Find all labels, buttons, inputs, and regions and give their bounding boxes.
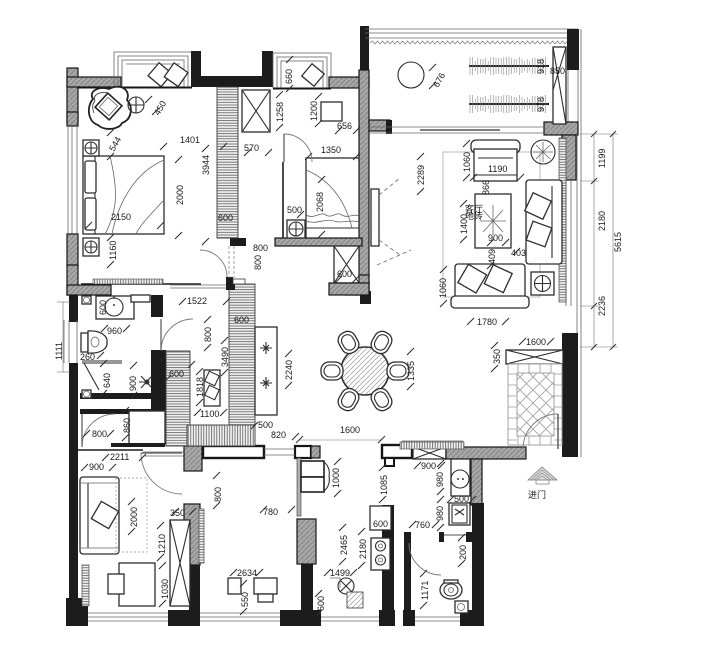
svg-text:1171: 1171 [420, 581, 430, 600]
svg-text:820: 820 [271, 430, 286, 440]
svg-text:350: 350 [492, 349, 502, 364]
svg-text:1000: 1000 [331, 468, 341, 488]
svg-text:1085: 1085 [379, 475, 389, 495]
svg-text:地砖: 地砖 [465, 210, 483, 221]
svg-text:200: 200 [458, 545, 468, 560]
svg-text:1522: 1522 [187, 296, 207, 306]
svg-text:5615: 5615 [613, 232, 623, 252]
svg-text:980: 980 [435, 472, 445, 487]
svg-text:500: 500 [454, 494, 469, 504]
svg-text:2211: 2211 [110, 452, 129, 462]
svg-text:600: 600 [98, 300, 108, 315]
svg-text:409: 409 [487, 249, 497, 264]
svg-text:500: 500 [258, 420, 273, 430]
svg-text:640: 640 [102, 373, 112, 388]
svg-text:600: 600 [169, 369, 184, 379]
svg-text:1030: 1030 [160, 579, 170, 599]
svg-text:800: 800 [253, 255, 263, 270]
svg-text:900: 900 [421, 461, 436, 471]
svg-text:1499: 1499 [330, 568, 350, 578]
svg-text:800: 800 [253, 243, 268, 253]
svg-text:1818: 1818 [195, 377, 205, 397]
svg-text:1111: 1111 [54, 342, 64, 360]
svg-text:800: 800 [92, 429, 107, 439]
svg-text:1210: 1210 [157, 534, 167, 554]
svg-text:3944: 3944 [201, 155, 211, 175]
svg-text:2634: 2634 [237, 568, 257, 578]
svg-text:500: 500 [287, 205, 302, 215]
svg-text:600: 600 [316, 596, 326, 611]
svg-text:350: 350 [170, 508, 185, 518]
svg-text:600: 600 [373, 519, 388, 529]
svg-text:2465: 2465 [339, 535, 349, 555]
svg-text:960: 960 [107, 326, 122, 336]
svg-text:260: 260 [80, 352, 95, 362]
svg-text:2240: 2240 [284, 360, 294, 380]
svg-text:1401: 1401 [180, 135, 200, 145]
svg-text:800: 800 [213, 487, 223, 502]
svg-text:980: 980 [435, 506, 445, 521]
svg-text:进门: 进门 [528, 489, 546, 500]
svg-text:3490: 3490 [220, 347, 230, 367]
svg-text:860: 860 [122, 418, 132, 433]
svg-text:900: 900 [488, 233, 503, 243]
svg-text:550: 550 [240, 592, 250, 607]
svg-text:978: 978 [536, 97, 546, 112]
svg-text:780: 780 [263, 507, 278, 517]
svg-text:600: 600 [234, 315, 249, 325]
svg-text:2000: 2000 [175, 185, 185, 205]
svg-text:2236: 2236 [597, 296, 607, 316]
svg-text:1060: 1060 [438, 278, 448, 298]
svg-text:1160: 1160 [108, 241, 118, 260]
svg-text:1200: 1200 [309, 101, 319, 121]
svg-text:800: 800 [203, 327, 213, 342]
svg-text:1100: 1100 [200, 409, 219, 419]
svg-text:600: 600 [218, 213, 233, 223]
svg-text:1199: 1199 [597, 149, 607, 168]
svg-text:1060: 1060 [462, 152, 472, 172]
svg-text:656: 656 [337, 121, 352, 131]
svg-text:2180: 2180 [358, 539, 368, 559]
svg-text:1350: 1350 [321, 145, 341, 155]
svg-text:760: 760 [415, 520, 430, 530]
svg-text:850: 850 [550, 66, 565, 76]
svg-text:2180: 2180 [597, 211, 607, 231]
svg-text:900: 900 [89, 462, 104, 472]
svg-text:866: 866 [481, 180, 491, 195]
svg-text:1600: 1600 [526, 337, 546, 347]
svg-text:1258: 1258 [275, 102, 285, 122]
svg-text:2150: 2150 [111, 212, 131, 222]
svg-text:1600: 1600 [340, 425, 360, 435]
svg-text:918: 918 [536, 59, 546, 74]
svg-text:1190: 1190 [488, 164, 507, 174]
svg-text:900: 900 [128, 376, 138, 391]
svg-text:2289: 2289 [416, 165, 426, 185]
svg-text:1335: 1335 [406, 361, 416, 381]
svg-text:660: 660 [284, 69, 294, 84]
svg-text:403: 403 [511, 248, 526, 258]
svg-text:600: 600 [337, 269, 352, 279]
svg-text:2000: 2000 [129, 507, 139, 527]
svg-text:570: 570 [244, 143, 259, 153]
svg-text:2068: 2068 [315, 192, 325, 212]
svg-text:1780: 1780 [477, 317, 497, 327]
